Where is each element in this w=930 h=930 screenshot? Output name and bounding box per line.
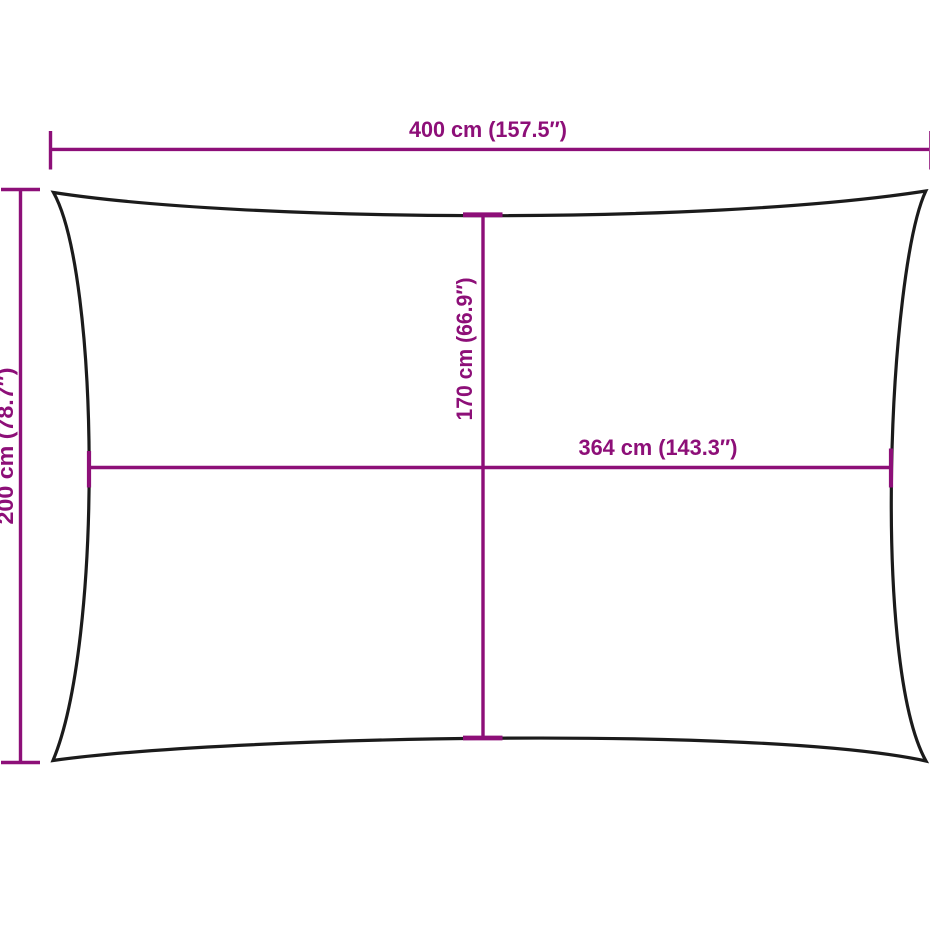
svg-text:400 cm (157.5″): 400 cm (157.5″) [409,117,567,142]
svg-text:364 cm (143.3″): 364 cm (143.3″) [579,435,738,460]
svg-text:170 cm (66.9″): 170 cm (66.9″) [452,278,477,421]
svg-text:200 cm (78.7″): 200 cm (78.7″) [0,368,18,525]
